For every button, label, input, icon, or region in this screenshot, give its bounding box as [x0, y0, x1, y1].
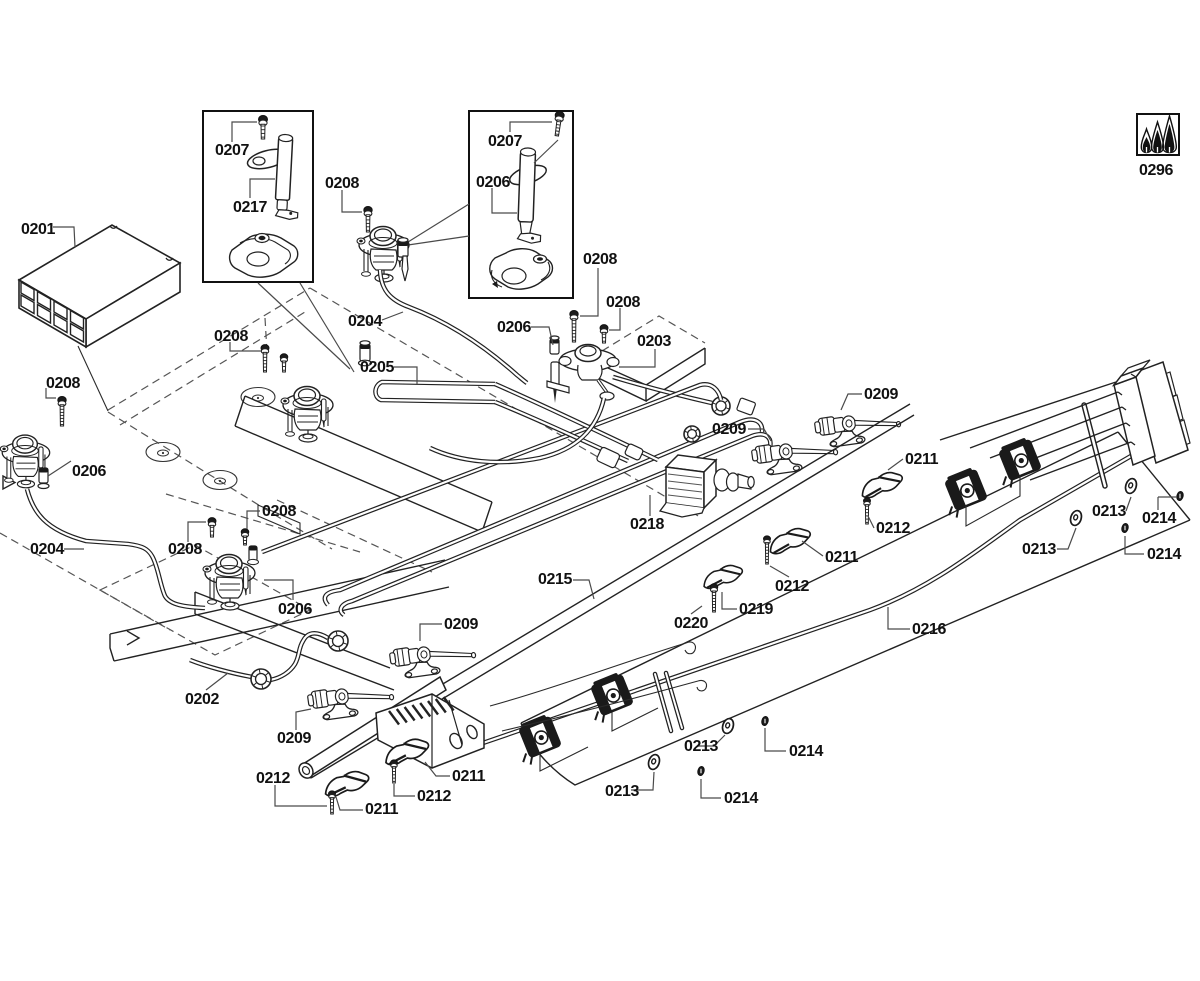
svg-text:0211: 0211	[365, 801, 399, 818]
svg-text:0220: 0220	[674, 615, 708, 632]
svg-text:0212: 0212	[256, 770, 290, 787]
svg-text:0216: 0216	[912, 621, 946, 638]
svg-text:0219: 0219	[739, 601, 773, 618]
svg-text:0203: 0203	[637, 333, 671, 350]
svg-text:0213: 0213	[605, 783, 639, 800]
svg-text:0206: 0206	[476, 174, 510, 191]
svg-text:0208: 0208	[168, 541, 202, 558]
svg-text:0209: 0209	[444, 616, 478, 633]
svg-text:0207: 0207	[488, 133, 522, 150]
svg-text:0208: 0208	[606, 294, 640, 311]
svg-text:0206: 0206	[278, 601, 312, 618]
svg-text:0208: 0208	[262, 503, 296, 520]
svg-text:0214: 0214	[789, 743, 823, 760]
svg-text:0296: 0296	[1139, 162, 1173, 179]
svg-text:0212: 0212	[417, 788, 451, 805]
svg-text:0212: 0212	[876, 520, 910, 537]
svg-text:0206: 0206	[72, 463, 106, 480]
svg-text:0217: 0217	[233, 199, 267, 216]
svg-text:0202: 0202	[185, 691, 219, 708]
svg-text:0208: 0208	[583, 251, 617, 268]
svg-text:0215: 0215	[538, 571, 572, 588]
svg-text:0209: 0209	[864, 386, 898, 403]
svg-text:0213: 0213	[684, 738, 718, 755]
svg-text:0204: 0204	[30, 541, 64, 558]
svg-text:0209: 0209	[277, 730, 311, 747]
svg-text:0208: 0208	[325, 175, 359, 192]
svg-text:0214: 0214	[724, 790, 758, 807]
svg-text:0213: 0213	[1092, 503, 1126, 520]
svg-text:0205: 0205	[360, 359, 394, 376]
svg-text:0209: 0209	[712, 421, 746, 438]
svg-text:0208: 0208	[214, 328, 248, 345]
svg-text:0201: 0201	[21, 221, 55, 238]
svg-text:0211: 0211	[452, 768, 486, 785]
svg-text:0206: 0206	[497, 319, 531, 336]
svg-text:0208: 0208	[46, 375, 80, 392]
svg-text:0211: 0211	[905, 451, 939, 468]
svg-text:0213: 0213	[1022, 541, 1056, 558]
svg-text:0211: 0211	[825, 549, 859, 566]
svg-text:0204: 0204	[348, 313, 382, 330]
svg-text:0214: 0214	[1147, 546, 1181, 563]
svg-text:0207: 0207	[215, 142, 249, 159]
svg-text:0218: 0218	[630, 516, 664, 533]
svg-text:0214: 0214	[1142, 510, 1176, 527]
svg-text:0212: 0212	[775, 578, 809, 595]
